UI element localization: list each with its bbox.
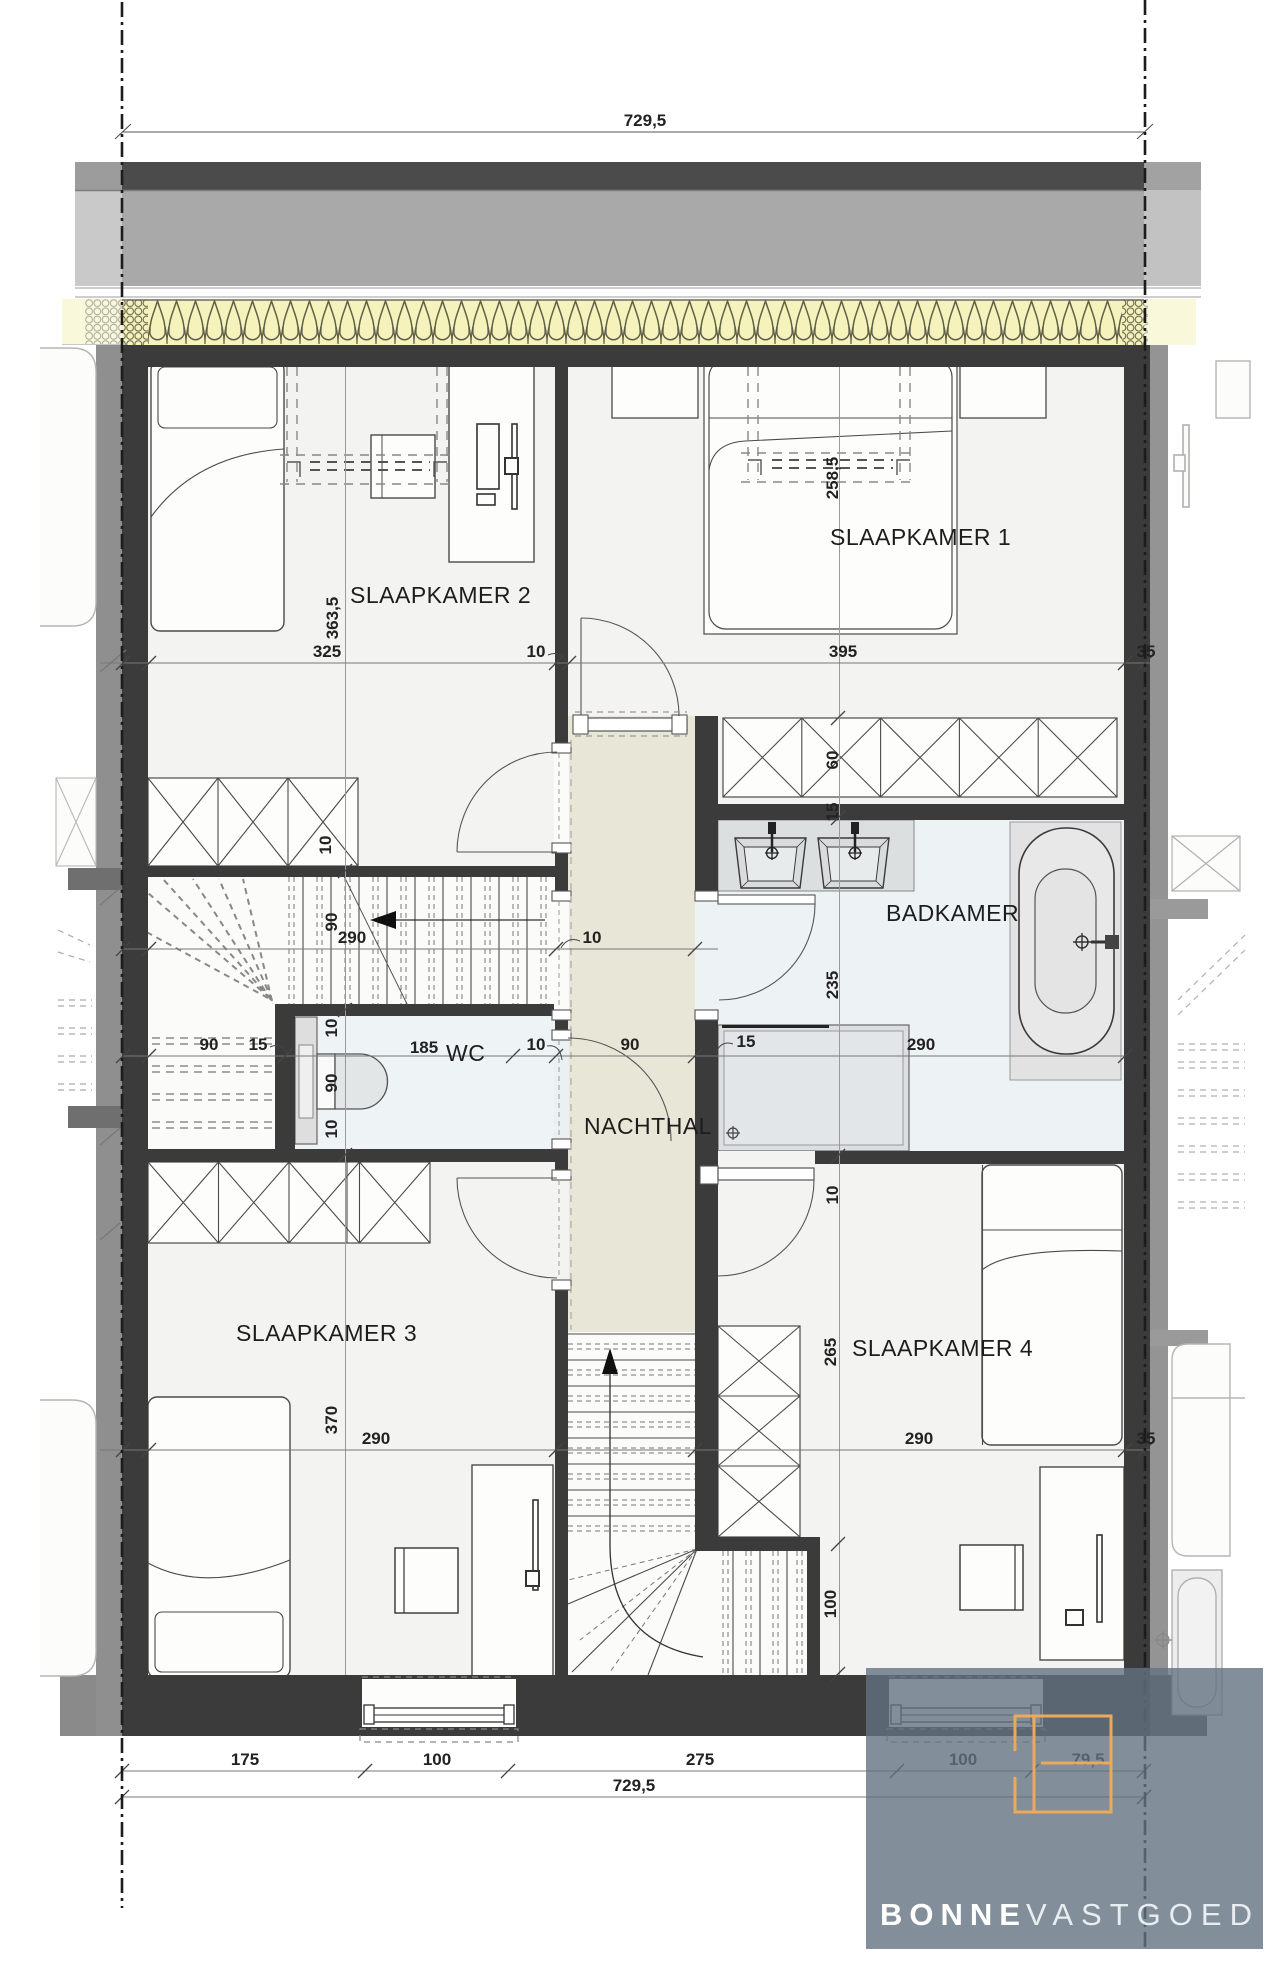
svg-text:185: 185 bbox=[410, 1038, 438, 1057]
svg-text:90: 90 bbox=[621, 1035, 640, 1054]
svg-text:90: 90 bbox=[200, 1035, 219, 1054]
svg-text:15: 15 bbox=[823, 803, 842, 822]
svg-text:325: 325 bbox=[313, 642, 341, 661]
svg-text:10: 10 bbox=[527, 642, 546, 661]
svg-text:290: 290 bbox=[907, 1035, 935, 1054]
svg-text:15: 15 bbox=[737, 1032, 756, 1051]
svg-text:235: 235 bbox=[823, 971, 842, 999]
svg-text:265: 265 bbox=[821, 1338, 840, 1366]
svg-text:15: 15 bbox=[249, 1035, 268, 1054]
svg-text:10: 10 bbox=[583, 928, 602, 947]
svg-text:729,5: 729,5 bbox=[624, 111, 667, 130]
svg-text:275: 275 bbox=[686, 1750, 714, 1769]
svg-text:60: 60 bbox=[823, 751, 842, 770]
svg-text:VASTGOED: VASTGOED bbox=[1026, 1897, 1260, 1932]
svg-text:10: 10 bbox=[527, 1035, 546, 1054]
svg-text:10: 10 bbox=[316, 836, 335, 855]
svg-text:10: 10 bbox=[823, 1186, 842, 1205]
svg-text:729,5: 729,5 bbox=[613, 1776, 656, 1795]
svg-text:258,5: 258,5 bbox=[823, 457, 842, 500]
svg-text:SLAAPKAMER 3: SLAAPKAMER 3 bbox=[236, 1320, 417, 1346]
svg-text:175: 175 bbox=[231, 1750, 259, 1769]
svg-text:90: 90 bbox=[322, 913, 341, 932]
svg-text:NACHTHAL: NACHTHAL bbox=[584, 1113, 712, 1139]
svg-text:290: 290 bbox=[905, 1429, 933, 1448]
svg-text:SLAAPKAMER 2: SLAAPKAMER 2 bbox=[350, 582, 531, 608]
svg-text:10: 10 bbox=[322, 1120, 341, 1139]
svg-text:100: 100 bbox=[423, 1750, 451, 1769]
svg-text:10: 10 bbox=[322, 1019, 341, 1038]
svg-text:BADKAMER: BADKAMER bbox=[886, 900, 1019, 926]
svg-text:100: 100 bbox=[821, 1590, 840, 1618]
svg-text:SLAAPKAMER 1: SLAAPKAMER 1 bbox=[830, 524, 1011, 550]
svg-text:90: 90 bbox=[322, 1074, 341, 1093]
svg-text:SLAAPKAMER 4: SLAAPKAMER 4 bbox=[852, 1335, 1033, 1361]
svg-text:290: 290 bbox=[362, 1429, 390, 1448]
svg-text:290: 290 bbox=[338, 928, 366, 947]
svg-text:395: 395 bbox=[829, 642, 857, 661]
svg-text:BONNE: BONNE bbox=[880, 1897, 1027, 1932]
svg-text:WC: WC bbox=[446, 1040, 485, 1066]
svg-text:370: 370 bbox=[322, 1406, 341, 1434]
svg-text:363,5: 363,5 bbox=[323, 597, 342, 640]
